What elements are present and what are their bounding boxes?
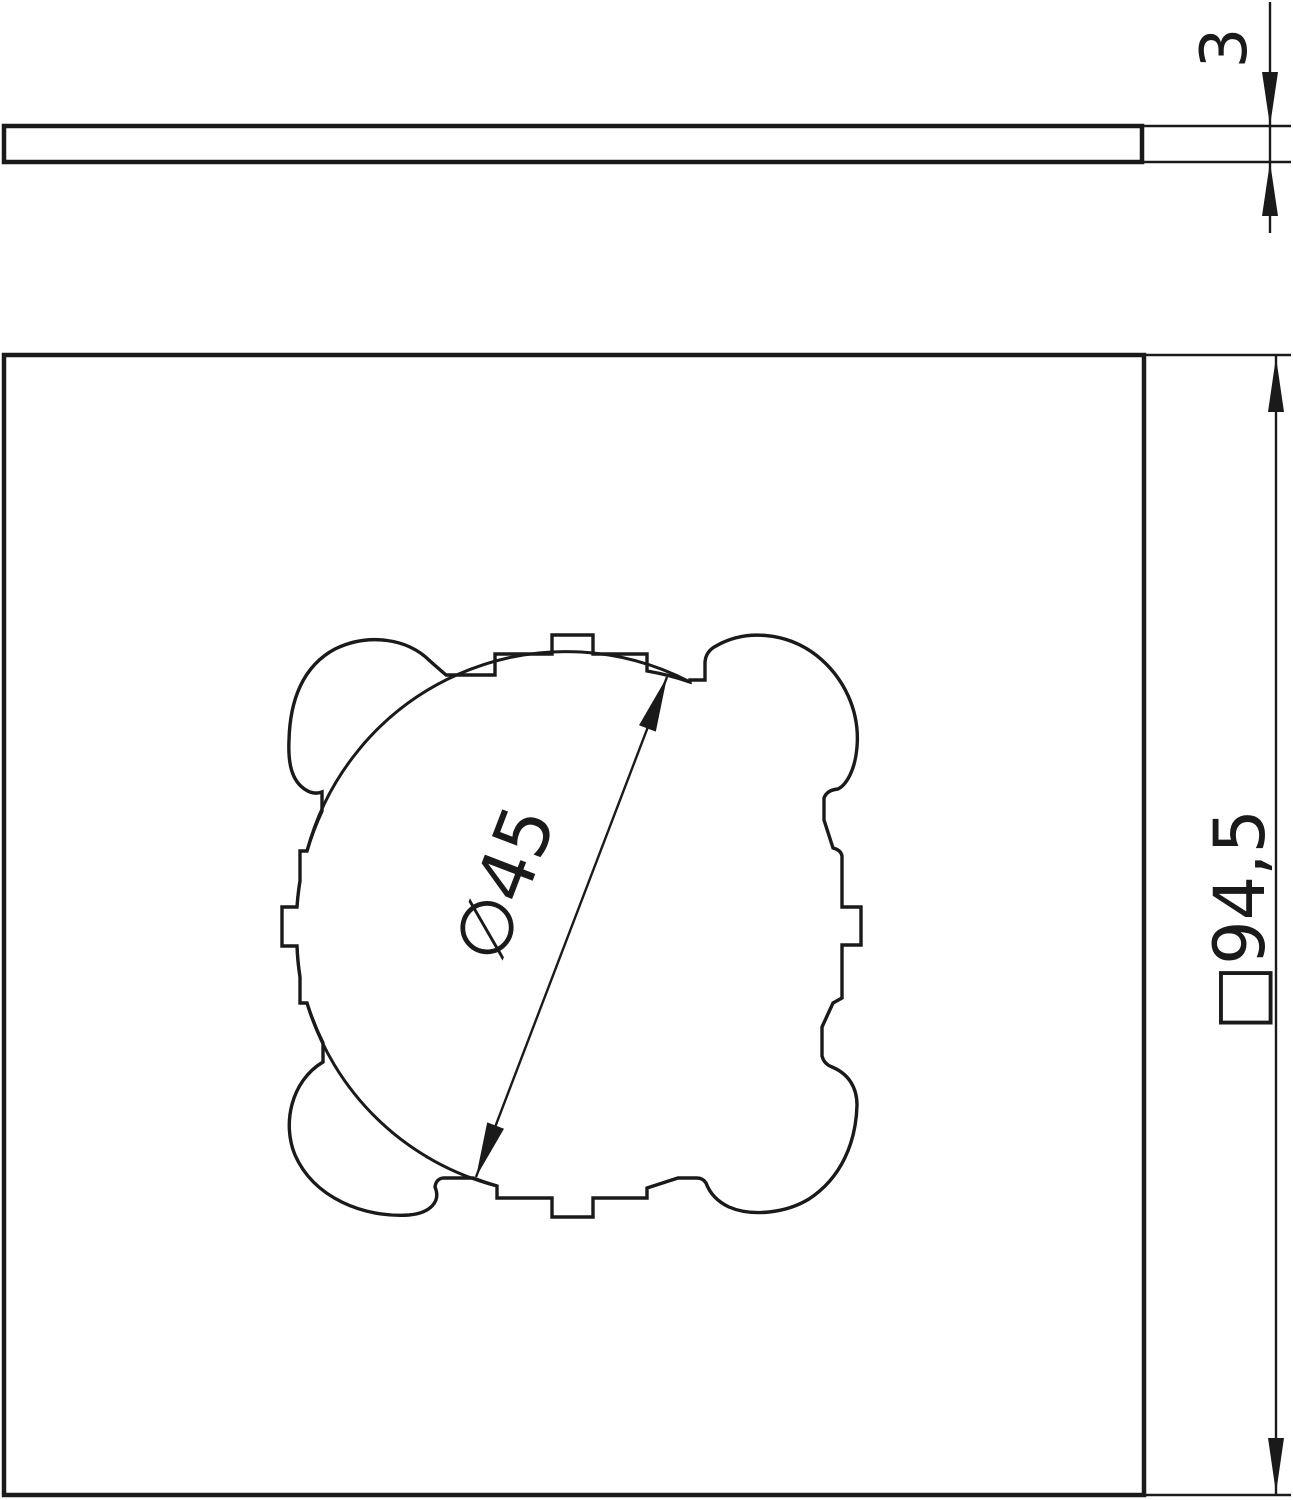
diameter-arrow-lower-icon bbox=[476, 1122, 504, 1177]
width-dimension-label: □94,5 bbox=[1199, 809, 1281, 1031]
width-arrow-down-icon bbox=[1268, 1438, 1284, 1493]
thickness-dimension-label: 3 bbox=[1188, 28, 1262, 69]
diameter-arrow-upper-icon bbox=[639, 677, 667, 732]
side-view-plate-outline bbox=[4, 126, 1142, 162]
cutout: ∅45 bbox=[282, 635, 861, 1217]
front-view-plate-outline bbox=[4, 355, 1144, 1495]
thickness-arrow-up-icon bbox=[1262, 162, 1278, 216]
side-view: 3 bbox=[4, 2, 1291, 233]
front-view: □94,5 ∅45 bbox=[4, 355, 1291, 1495]
thickness-arrow-down-icon bbox=[1262, 72, 1278, 126]
drawing-lines: 3 □94,5 ∅45 bbox=[4, 2, 1291, 1495]
technical-drawing: 3 □94,5 ∅45 bbox=[0, 0, 1293, 1500]
width-arrow-up-icon bbox=[1268, 357, 1284, 412]
drawing-canvas: 3 □94,5 ∅45 bbox=[0, 0, 1293, 1500]
diameter-dimension-label: ∅45 bbox=[436, 795, 573, 974]
